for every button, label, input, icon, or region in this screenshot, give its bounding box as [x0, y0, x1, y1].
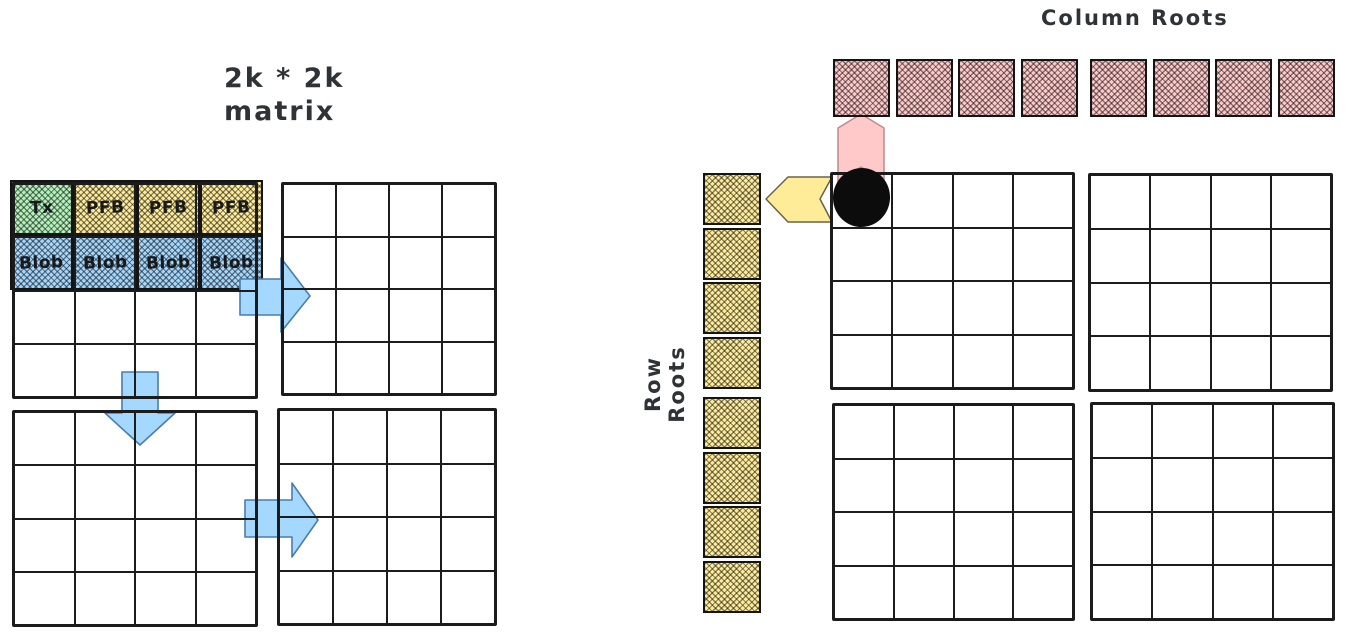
extended-grid-top-right: [1088, 173, 1333, 392]
matrix-cell: [1090, 175, 1150, 229]
matrix-cell: [389, 184, 442, 237]
matrix-cell: [441, 410, 495, 464]
matrix-cell: [75, 184, 136, 237]
matrix-cell: [442, 237, 495, 290]
matrix-cell: [283, 184, 336, 237]
matrix-cell: [1273, 565, 1333, 619]
matrix-cell: [135, 184, 196, 237]
matrix-cell: [333, 571, 387, 625]
column-roots-square: [958, 59, 1015, 117]
matrix-cell: [1013, 459, 1073, 513]
matrix-cell: [135, 465, 196, 518]
row-roots-square: [703, 506, 761, 558]
matrix-cell: [333, 517, 387, 571]
matrix-cell: [1150, 175, 1210, 229]
matrix-cell: [1090, 336, 1150, 390]
row-roots-square: [703, 452, 761, 504]
matrix-cell: [135, 519, 196, 572]
column-roots-square: [833, 59, 890, 117]
matrix-cell: [1152, 512, 1212, 566]
column-roots-square: [1215, 59, 1272, 117]
matrix-cell: [442, 342, 495, 395]
matrix-cell: [1090, 283, 1150, 337]
matrix-cell: [441, 517, 495, 571]
matrix-cell: [196, 519, 257, 572]
matrix-cell: [75, 291, 136, 344]
matrix-cell: [196, 237, 257, 290]
matrix-grid-bottom-left: [12, 410, 258, 627]
matrix-cell: [834, 566, 894, 620]
matrix-cell: [387, 464, 441, 518]
matrix-cell: [135, 412, 196, 465]
matrix-cell: [1013, 335, 1073, 389]
matrix-cell: [1013, 174, 1073, 228]
matrix-cell: [14, 184, 75, 237]
matrix-cell: [196, 412, 257, 465]
matrix-cell: [14, 465, 75, 518]
diagram-canvas: TxPFBPFBPFBBlobBlobBlobBlob 2k * 2k matr…: [0, 0, 1358, 638]
matrix-cell: [1273, 404, 1333, 458]
row-roots-group-2: [703, 397, 761, 613]
matrix-cell: [1092, 404, 1152, 458]
matrix-cell: [441, 571, 495, 625]
matrix-cell: [894, 405, 954, 459]
matrix-cell: [196, 344, 257, 397]
matrix-cell: [196, 465, 257, 518]
row-roots-square: [703, 397, 761, 449]
matrix-cell: [1271, 336, 1331, 390]
matrix-cell: [832, 335, 892, 389]
matrix-cell: [14, 237, 75, 290]
matrix-cell: [953, 174, 1013, 228]
matrix-cell: [14, 519, 75, 572]
column-roots-square: [1090, 59, 1147, 117]
matrix-cell: [336, 289, 389, 342]
matrix-cell: [1013, 281, 1073, 335]
arrow-left-row-root-icon: [764, 175, 834, 224]
row-roots-square: [703, 282, 761, 334]
matrix-cell: [892, 335, 952, 389]
matrix-cell: [333, 410, 387, 464]
matrix-cell: [196, 184, 257, 237]
extended-grid-bottom-left: [832, 403, 1075, 621]
matrix-cell: [135, 291, 196, 344]
matrix-cell: [279, 410, 333, 464]
matrix-grid-top-right: [281, 182, 497, 396]
matrix-cell: [387, 571, 441, 625]
matrix-cell: [832, 281, 892, 335]
matrix-cell: [1152, 404, 1212, 458]
matrix-cell: [1090, 229, 1150, 283]
row-roots-label: Row Roots: [641, 345, 689, 423]
matrix-cell: [892, 228, 952, 282]
matrix-cell: [1211, 175, 1271, 229]
matrix-cell: [389, 237, 442, 290]
matrix-cell: [1273, 512, 1333, 566]
matrix-cell: [135, 572, 196, 625]
matrix-cell: [389, 342, 442, 395]
row-roots-square: [703, 228, 761, 280]
row-roots-square: [703, 337, 761, 389]
matrix-cell: [279, 464, 333, 518]
row-roots-group-1: [703, 173, 761, 389]
matrix-cell: [1092, 458, 1152, 512]
matrix-cell: [279, 571, 333, 625]
matrix-cell: [336, 237, 389, 290]
matrix-cell: [1213, 404, 1273, 458]
matrix-cell: [389, 289, 442, 342]
column-roots-group-1: [833, 59, 1078, 117]
matrix-cell: [14, 412, 75, 465]
matrix-cell: [1211, 283, 1271, 337]
matrix-cell: [135, 237, 196, 290]
column-roots-square: [1278, 59, 1335, 117]
matrix-cell: [442, 184, 495, 237]
matrix-cell: [954, 459, 1014, 513]
matrix-cell: [75, 519, 136, 572]
matrix-cell: [196, 572, 257, 625]
matrix-cell: [834, 459, 894, 513]
matrix-cell: [1150, 229, 1210, 283]
matrix-cell: [1271, 229, 1331, 283]
matrix-cell: [954, 405, 1014, 459]
column-roots-square: [1021, 59, 1078, 117]
matrix-cell: [387, 517, 441, 571]
matrix-cell: [75, 572, 136, 625]
matrix-grid-bottom-right: [277, 408, 497, 626]
matrix-cell: [75, 344, 136, 397]
matrix-cell: [892, 281, 952, 335]
matrix-cell: [1213, 458, 1273, 512]
matrix-cell: [283, 237, 336, 290]
matrix-cell: [1013, 566, 1073, 620]
matrix-cell: [894, 512, 954, 566]
column-roots-label: Column Roots: [1041, 6, 1229, 30]
matrix-cell: [1013, 405, 1073, 459]
matrix-cell: [336, 342, 389, 395]
matrix-cell: [892, 174, 952, 228]
matrix-cell: [832, 228, 892, 282]
matrix-cell: [1150, 283, 1210, 337]
matrix-cell: [14, 572, 75, 625]
matrix-cell: [894, 566, 954, 620]
matrix-cell: [1150, 336, 1210, 390]
row-roots-label-wrap: Row Roots: [641, 319, 667, 449]
matrix-cell: [14, 344, 75, 397]
matrix-cell: [1211, 229, 1271, 283]
matrix-size-caption: 2k * 2k matrix: [224, 62, 344, 128]
matrix-cell: [954, 566, 1014, 620]
matrix-cell: [75, 412, 136, 465]
matrix-cell: [894, 459, 954, 513]
matrix-cell: [336, 184, 389, 237]
matrix-cell: [1013, 512, 1073, 566]
matrix-cell: [135, 344, 196, 397]
matrix-cell: [75, 465, 136, 518]
matrix-cell: [1013, 228, 1073, 282]
matrix-cell: [75, 237, 136, 290]
matrix-cell: [1271, 283, 1331, 337]
matrix-cell: [283, 289, 336, 342]
matrix-cell: [1092, 565, 1152, 619]
matrix-cell: [1213, 512, 1273, 566]
matrix-cell: [441, 464, 495, 518]
matrix-cell: [1271, 175, 1331, 229]
matrix-cell: [1152, 458, 1212, 512]
matrix-cell: [1213, 565, 1273, 619]
matrix-grid-top-left: [12, 182, 258, 399]
matrix-cell: [279, 517, 333, 571]
matrix-cell: [834, 405, 894, 459]
matrix-cell: [196, 291, 257, 344]
matrix-cell: [283, 342, 336, 395]
column-roots-group-2: [1090, 59, 1335, 117]
column-roots-square: [896, 59, 953, 117]
matrix-cell: [1152, 565, 1212, 619]
row-roots-square: [703, 561, 761, 613]
matrix-cell: [953, 335, 1013, 389]
matrix-cell: [1092, 512, 1152, 566]
row-roots-square: [703, 173, 761, 225]
matrix-cell: [953, 281, 1013, 335]
column-roots-square: [1153, 59, 1210, 117]
matrix-cell: [954, 512, 1014, 566]
matrix-caption-line2: matrix: [224, 95, 344, 128]
matrix-cell: [1211, 336, 1271, 390]
matrix-cell: [953, 228, 1013, 282]
matrix-cell: [834, 512, 894, 566]
matrix-cell: [387, 410, 441, 464]
matrix-cell: [14, 291, 75, 344]
matrix-cell: [442, 289, 495, 342]
matrix-caption-line1: 2k * 2k: [224, 62, 344, 95]
matrix-cell: [1273, 458, 1333, 512]
extended-grid-bottom-right: [1090, 402, 1335, 621]
matrix-cell: [333, 464, 387, 518]
